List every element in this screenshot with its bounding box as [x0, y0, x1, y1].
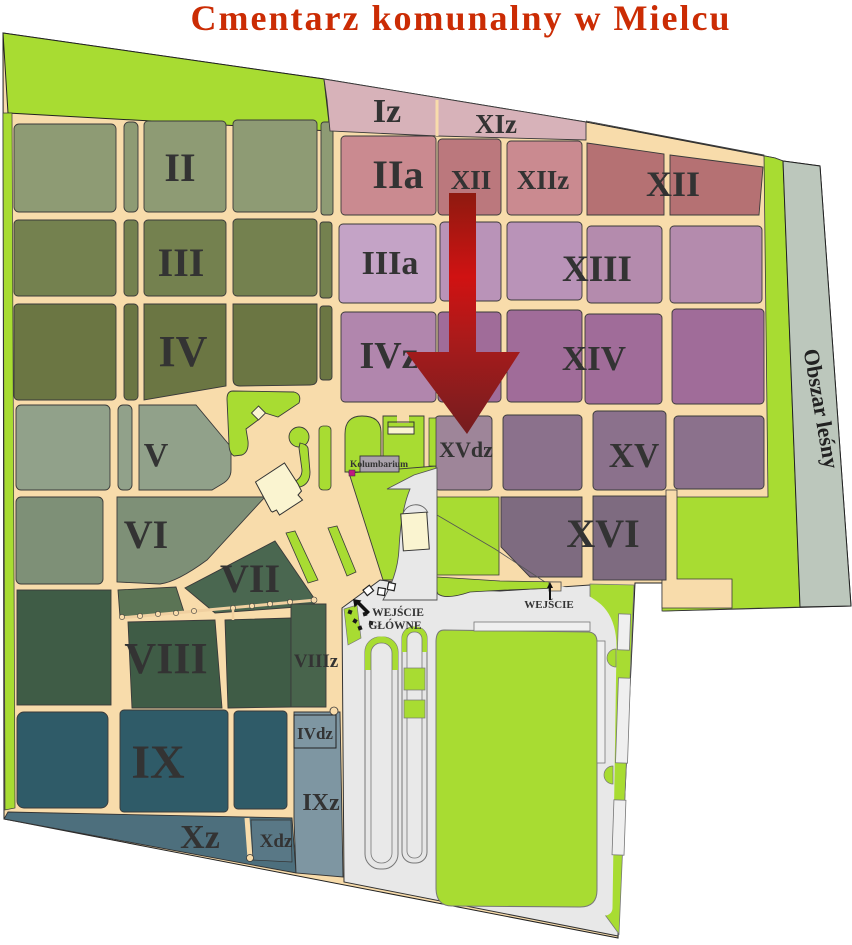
svg-text:Cmentarz komunalny w Mielcu: Cmentarz komunalny w Mielcu [191, 0, 732, 38]
svg-text:Xdz: Xdz [260, 831, 293, 852]
svg-text:VIIIz: VIIIz [294, 651, 339, 672]
svg-text:IXz: IXz [302, 790, 340, 816]
svg-text:XVdz: XVdz [439, 437, 493, 462]
svg-text:XVI: XVI [566, 511, 639, 556]
svg-text:XV: XV [609, 436, 660, 475]
svg-text:V: V [144, 437, 169, 474]
svg-text:XII: XII [646, 164, 700, 204]
svg-text:IVdz: IVdz [297, 724, 333, 743]
svg-text:IV: IV [159, 327, 208, 376]
svg-text:II: II [164, 145, 195, 190]
svg-text:VI: VI [124, 512, 168, 557]
svg-text:IX: IX [131, 736, 185, 789]
svg-text:IIa: IIa [372, 152, 423, 197]
svg-text:XIV: XIV [562, 339, 626, 378]
svg-text:WEJŚCIE: WEJŚCIE [524, 599, 574, 611]
svg-text:Xz: Xz [180, 819, 220, 856]
svg-text:VII: VII [220, 556, 280, 601]
svg-text:Kolumbarium: Kolumbarium [350, 460, 408, 470]
svg-text:XII: XII [451, 165, 492, 195]
svg-text:Iz: Iz [373, 93, 401, 130]
svg-text:IIIa: IIIa [362, 245, 419, 282]
svg-text:III: III [158, 240, 205, 285]
svg-text:GŁÓWNE: GŁÓWNE [368, 618, 421, 632]
svg-text:XIIz: XIIz [517, 165, 570, 195]
svg-text:WEJŚCIE: WEJŚCIE [372, 605, 424, 619]
svg-text:XIz: XIz [475, 109, 517, 139]
svg-text:VIII: VIII [124, 634, 207, 683]
svg-text:XIII: XIII [562, 249, 632, 290]
